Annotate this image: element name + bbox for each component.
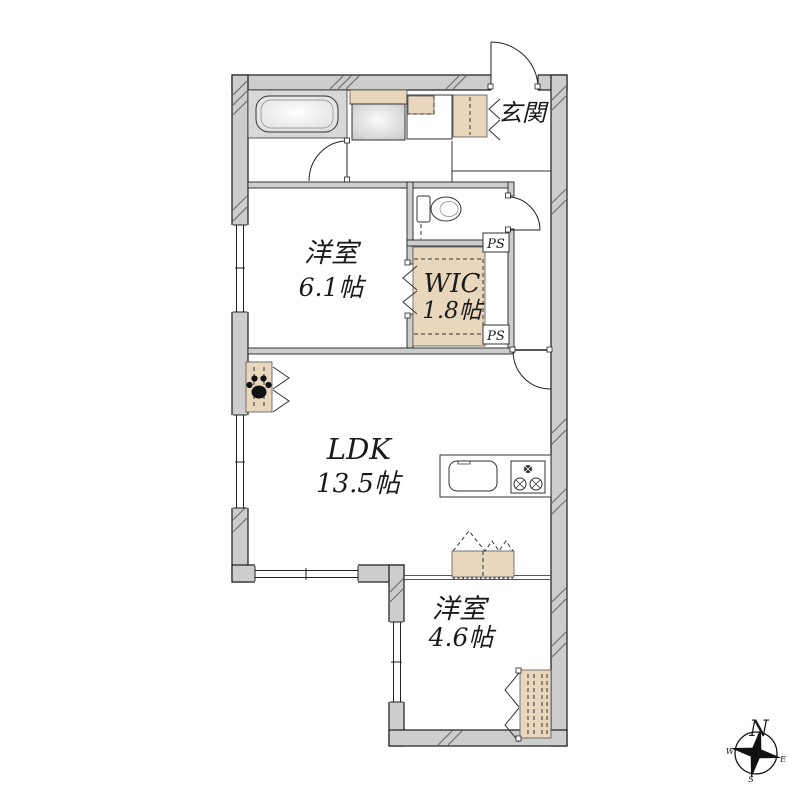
bedroom1-size-label: 6.1帖	[299, 273, 367, 302]
floor-plan-page: 玄関 WIC 1.8帖 PS PS	[0, 0, 800, 800]
ldk-door	[510, 347, 552, 389]
storage-counter	[452, 531, 514, 577]
storage-counter-doors	[453, 531, 513, 551]
ps-box-bottom: PS	[483, 325, 509, 344]
bedroom2-labels: 洋室 4.6帖	[428, 594, 497, 652]
compass-south-label: S	[748, 775, 754, 784]
ldk-label: LDK	[326, 432, 394, 466]
compass-east-label: E	[779, 755, 786, 764]
kitchen-counter	[440, 455, 551, 497]
window-ldk-left	[231, 415, 249, 508]
svg-text:PS: PS	[486, 329, 505, 344]
svg-text:PS: PS	[486, 237, 505, 252]
bathroom	[248, 90, 347, 138]
bedroom2-label: 洋室	[432, 594, 490, 625]
pet-cabinet-doors	[273, 367, 289, 412]
entrance-door	[488, 42, 540, 91]
window-bedroom2-left	[388, 622, 405, 702]
entrance-label: 玄関	[498, 99, 549, 127]
compass: N W E S	[726, 717, 787, 784]
washbasin	[407, 95, 452, 139]
toilet-door	[506, 193, 541, 232]
compass-west-label: W	[726, 747, 735, 756]
bathroom-door	[309, 138, 350, 182]
wic-size-label: 1.8帖	[422, 298, 485, 324]
window-ldk-bottom	[255, 564, 358, 583]
floor-plan: 玄関 WIC 1.8帖 PS PS	[0, 0, 800, 800]
toilet	[417, 196, 461, 239]
bedroom2-size-label: 4.6帖	[428, 623, 497, 652]
pet-cabinet	[246, 362, 289, 412]
washing-machine	[352, 104, 405, 140]
bedroom1-labels: 洋室 6.1帖	[299, 238, 367, 302]
washer-space	[350, 90, 407, 140]
window-bedroom1-left	[231, 225, 249, 312]
shoe-cabinet	[453, 95, 487, 137]
entrance-area: 玄関	[452, 95, 551, 182]
bathtub	[256, 96, 338, 132]
wic-area: WIC 1.8帖	[403, 247, 485, 346]
kitchen-stove	[511, 461, 545, 493]
ps-box-top: PS	[483, 233, 509, 252]
kitchen-sink	[449, 461, 497, 491]
ldk-size-label: 13.5帖	[316, 469, 404, 499]
compass-north-label: N	[748, 717, 769, 742]
ldk-labels: LDK 13.5帖	[316, 432, 404, 499]
bedroom1-label: 洋室	[304, 238, 362, 269]
wic-label: WIC	[424, 269, 481, 299]
